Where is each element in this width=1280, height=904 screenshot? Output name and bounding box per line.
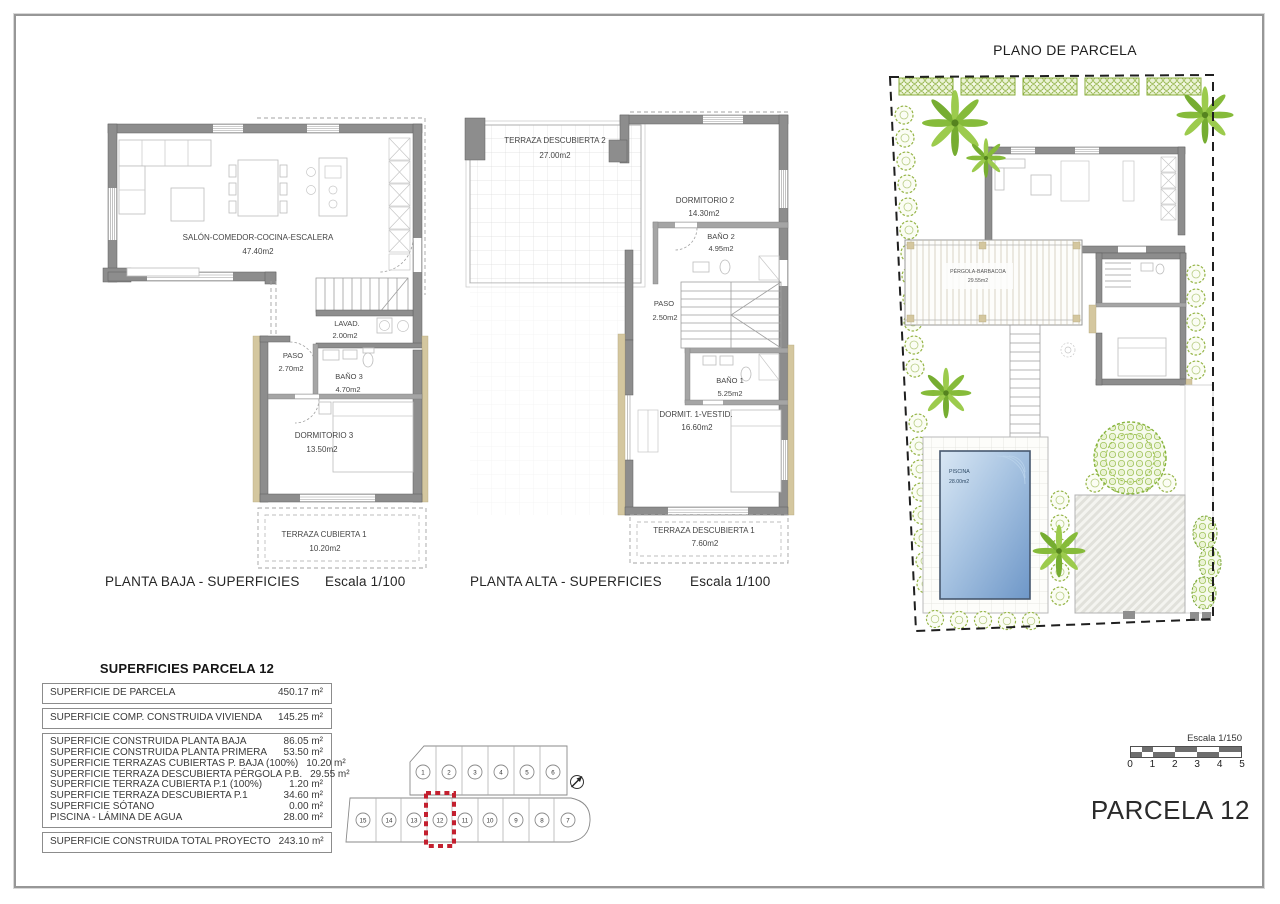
svg-text:4: 4 <box>499 769 503 776</box>
areas-table-title: SUPERFICIES PARCELA 12 <box>42 661 332 676</box>
area-label-salon: 47.40m2 <box>242 247 274 256</box>
scale-planta-baja: Escala 1/100 <box>325 574 405 589</box>
upper-floor-plan: TERRAZA DESCUBIERTA 2 27.00m2 DORMITORIO… <box>463 110 793 575</box>
stairs-ground <box>316 278 413 316</box>
table-row: SUPERFICIE DE PARCELA 450.17 m² <box>50 688 323 699</box>
room-label-dormitorio1: DORMIT. 1-VESTID. <box>659 410 732 419</box>
area-label-piscina: 28.00m2 <box>949 479 969 485</box>
bathroom2-fixtures <box>693 256 779 280</box>
caption-planta-baja: PLANTA BAJA - SUPERFICIES <box>105 574 300 589</box>
areas-table-box-parcel: SUPERFICIE DE PARCELA 450.17 m² <box>42 683 332 704</box>
round-tree <box>1094 422 1166 494</box>
area-label-bano3: 4.70m2 <box>335 385 360 394</box>
area-label-dormitorio2: 14.30m2 <box>688 209 720 218</box>
room-label-lavadero: LAVAD. <box>334 319 360 328</box>
scale-bar-graphic <box>1130 746 1242 758</box>
area-label-dormitorio3: 13.50m2 <box>306 445 338 454</box>
room-label-dormitorio3: DORMITORIO 3 <box>295 431 354 440</box>
table-row: SUPERFICIE CONSTRUIDA PLANTA PRIMERA53.5… <box>50 748 323 759</box>
svg-text:15: 15 <box>360 817 367 824</box>
table-row: SUPERFICIE CONSTRUIDA TOTAL PROYECTO 243… <box>50 837 323 848</box>
room-label-terraza2: TERRAZA DESCUBIERTA 2 <box>504 136 606 145</box>
palm-tree-icon <box>922 90 988 156</box>
area-label-bano2: 4.95m2 <box>708 244 733 253</box>
parcel-plan: PÉRGOLA-BARBACOA 29.55m2 PISCINA 28.00m2 <box>883 63 1238 643</box>
room-label-paso: PASO <box>283 351 303 360</box>
svg-text:7: 7 <box>566 817 570 824</box>
stairs-upper <box>681 282 781 348</box>
scale-bar: Escala 1/150 0 1 2 3 4 5 <box>1130 733 1242 772</box>
bedroom3 <box>260 402 422 502</box>
caption-planta-alta: PLANTA ALTA - SUPERFICIES <box>470 574 662 589</box>
areas-table-box-breakdown: SUPERFICIE CONSTRUIDA PLANTA BAJA86.05 m… <box>42 733 332 828</box>
room-label-terraza1: TERRAZA DESCUBIERTA 1 <box>653 526 755 535</box>
areas-table-box-total: SUPERFICIE CONSTRUIDA TOTAL PROYECTO 243… <box>42 832 332 853</box>
site-location-map: 1 2 3 4 5 6 15 14 13 12 11 10 9 <box>340 732 730 860</box>
svg-text:8: 8 <box>540 817 544 824</box>
room-label-paso-upper: PASO <box>654 299 674 308</box>
svg-text:12: 12 <box>437 817 444 824</box>
north-arrow-icon <box>571 776 584 789</box>
paved-patio <box>1075 495 1185 613</box>
svg-text:9: 9 <box>514 817 518 824</box>
ground-floor-plan: SALÓN-COMEDOR-COCINA-ESCALERA 47.40m2 LA… <box>95 110 440 575</box>
plan-sheet: SALÓN-COMEDOR-COCINA-ESCALERA 47.40m2 LA… <box>0 0 1280 904</box>
pool-terrace: PISCINA 28.00m2 <box>923 437 1048 613</box>
scale-planta-alta: Escala 1/100 <box>690 574 770 589</box>
svg-text:2: 2 <box>447 769 451 776</box>
areas-table-box-dwelling: SUPERFICIE COMP. CONSTRUIDA VIVIENDA 145… <box>42 708 332 729</box>
room-label-salon: SALÓN-COMEDOR-COCINA-ESCALERA <box>183 233 334 242</box>
label-pergola: PÉRGOLA-BARBACOA <box>950 268 1006 275</box>
hedge-top <box>899 78 1201 95</box>
svg-text:10: 10 <box>487 817 494 824</box>
area-label-pergola: 29.55m2 <box>968 278 988 284</box>
garden-stairs <box>1010 325 1040 447</box>
table-row: PISCINA - LÁMINA DE AGUA28.00 m² <box>50 813 323 824</box>
area-label-lavadero: 2.00m2 <box>332 331 357 340</box>
room-label-terraza-cubierta1: TERRAZA CUBIERTA 1 <box>281 530 367 539</box>
house-footprint <box>985 147 1185 253</box>
table-row: SUPERFICIE TERRAZAS CUBIERTAS P. BAJA (1… <box>50 759 323 770</box>
site-map-bottom-row: 15 14 13 12 11 10 9 8 7 <box>346 793 590 846</box>
table-row: SUPERFICIE COMP. CONSTRUIDA VIVIENDA 145… <box>50 713 323 724</box>
svg-text:1: 1 <box>421 769 425 776</box>
room-label-bano1: BAÑO 1 <box>716 376 744 385</box>
area-label-paso: 2.70m2 <box>278 364 303 373</box>
svg-text:13: 13 <box>411 817 418 824</box>
area-label-terraza2: 27.00m2 <box>539 151 571 160</box>
room-label-bano3: BAÑO 3 <box>335 372 363 381</box>
area-label-terraza1: 7.60m2 <box>692 539 719 548</box>
parcel-plan-title: PLANO DE PARCELA <box>965 42 1165 58</box>
svg-text:11: 11 <box>462 817 469 824</box>
svg-text:5: 5 <box>525 769 529 776</box>
plot-circle: 15 14 13 12 11 10 9 8 7 <box>356 813 575 827</box>
scale-bar-ticks: 0 1 2 3 4 5 <box>1130 759 1242 772</box>
site-map-top-row: 1 2 3 4 5 6 <box>410 746 567 795</box>
pergola-bbq: PÉRGOLA-BARBACOA 29.55m2 <box>905 240 1082 325</box>
area-label-bano1: 5.25m2 <box>717 389 742 398</box>
svg-text:3: 3 <box>473 769 477 776</box>
parcel-number-label: PARCELA 12 <box>1050 795 1250 826</box>
area-label-paso-upper: 2.50m2 <box>652 313 677 322</box>
room-label-bano2: BAÑO 2 <box>707 232 735 241</box>
svg-text:6: 6 <box>551 769 555 776</box>
area-label-dormitorio1: 16.60m2 <box>681 423 713 432</box>
kitchen-counter <box>389 138 410 270</box>
area-label-terraza-cubierta1: 10.20m2 <box>309 544 341 553</box>
svg-text:14: 14 <box>386 817 393 824</box>
areas-table: SUPERFICIES PARCELA 12 SUPERFICIE DE PAR… <box>42 661 332 857</box>
label-piscina: PISCINA <box>949 469 970 475</box>
room-label-dormitorio2: DORMITORIO 2 <box>676 196 735 205</box>
scale-bar-label: Escala 1/150 <box>1130 733 1242 744</box>
